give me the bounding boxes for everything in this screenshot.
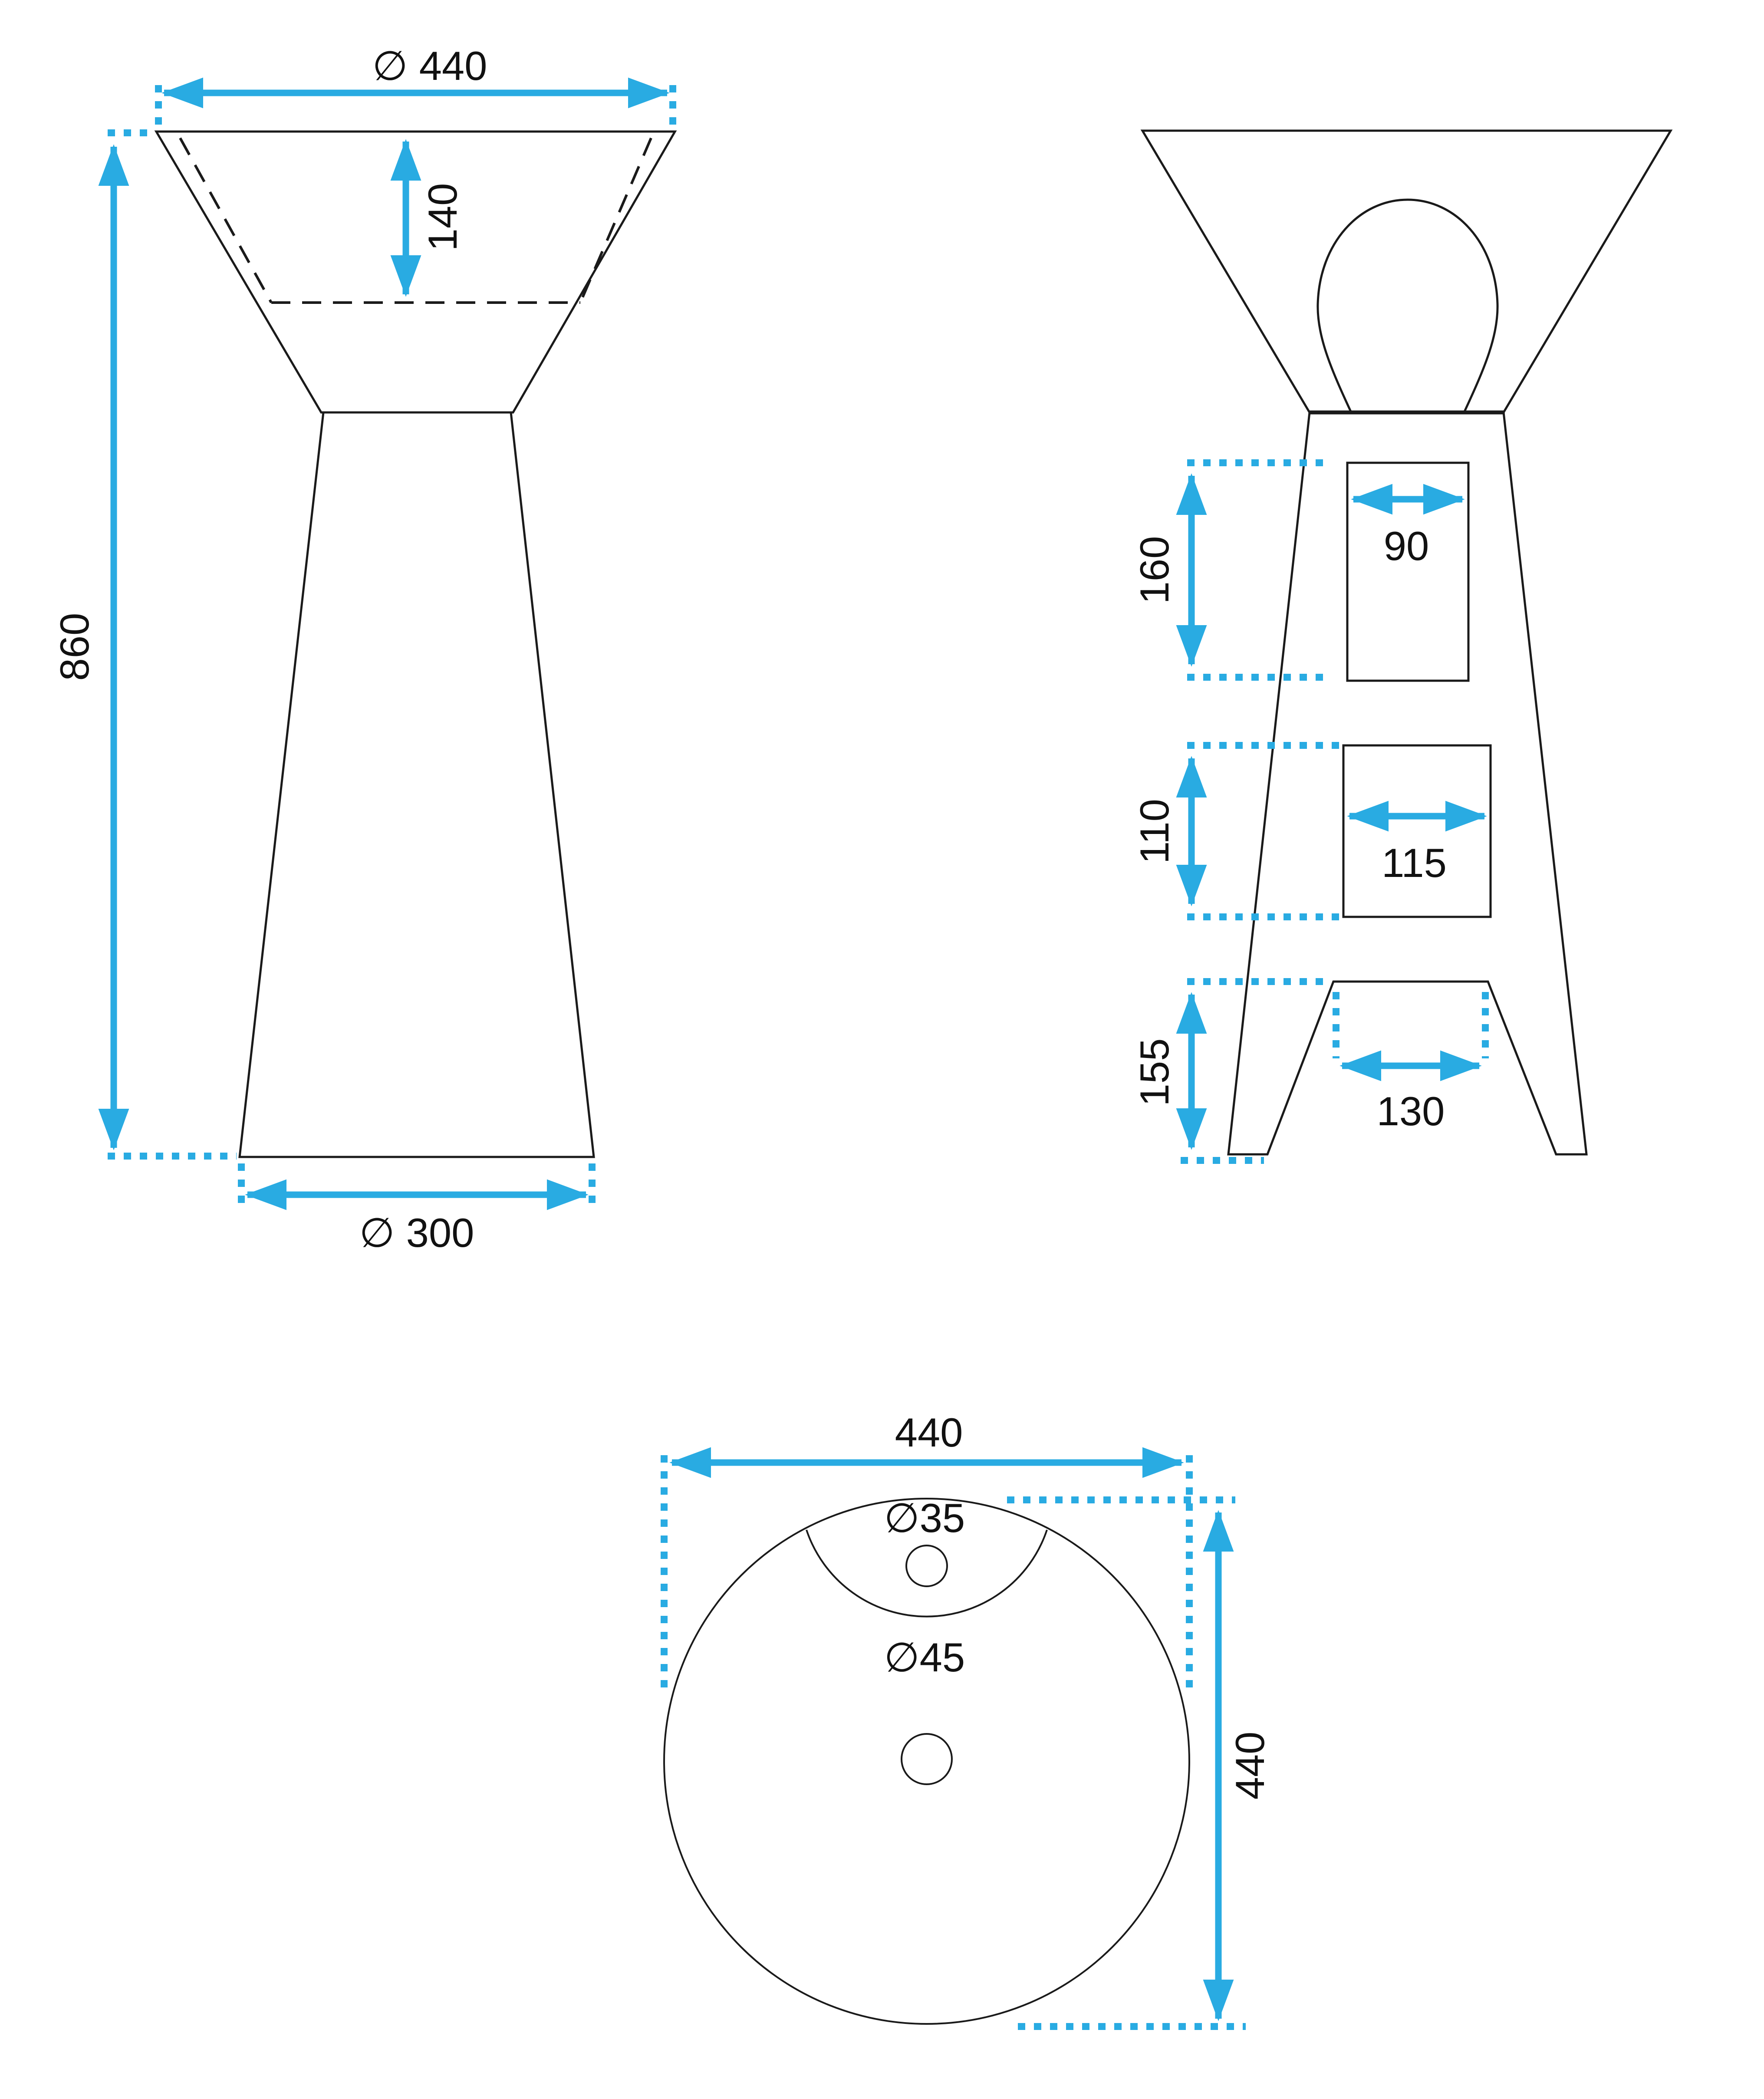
top-view-rim-circle [664, 1499, 1189, 2024]
back-dim-middle-opening-width: 115 [1349, 816, 1484, 886]
front-pedestal-outline [240, 412, 594, 1157]
front-basin-inner-dashed-line [180, 138, 651, 303]
back-dim-upper-opening-width: 90 [1353, 499, 1462, 569]
front-dim-total-height: 860 [52, 133, 237, 1156]
back-basin-outline [1142, 131, 1671, 412]
dimension-label: 90 [1384, 523, 1429, 569]
front-basin-outline [156, 132, 675, 412]
dimension-label: 160 [1132, 536, 1177, 604]
technical-drawing-canvas: ∅ 440 140 860 ∅ 300 [0, 0, 1764, 2099]
dimension-label: ∅ 440 [372, 43, 487, 89]
back-arch-recess-outline [1318, 200, 1497, 412]
dimension-label: 130 [1377, 1088, 1445, 1134]
dimension-label: ∅35 [884, 1495, 965, 1541]
dimension-label: 155 [1132, 1038, 1177, 1107]
dimension-label: ∅ 300 [359, 1210, 474, 1255]
dimension-label: 440 [895, 1410, 963, 1455]
back-upper-opening [1347, 463, 1468, 681]
back-dim-base-opening-width: 130 [1336, 992, 1485, 1134]
dimension-label: 115 [1382, 840, 1447, 886]
dimension-label: 140 [420, 183, 465, 251]
back-middle-opening [1343, 745, 1491, 917]
front-dim-top-diameter: ∅ 440 [158, 43, 673, 131]
top-view-faucet-deck-arc [806, 1530, 1047, 1617]
front-dim-basin-depth: 140 [406, 142, 465, 294]
drawing-page: ∅ 440 140 860 ∅ 300 [0, 0, 1764, 2099]
back-dim-middle-opening-height: 110 [1132, 745, 1340, 917]
front-dim-base-diameter: ∅ 300 [241, 1163, 592, 1255]
dimension-label: ∅45 [884, 1634, 965, 1680]
dimension-label: 860 [52, 613, 97, 681]
back-dim-upper-opening-height: 160 [1132, 463, 1327, 677]
back-view: 160 90 110 115 155 [1132, 131, 1671, 1160]
dimension-label: 440 [1227, 1732, 1273, 1800]
dimension-label: 110 [1132, 799, 1177, 864]
front-view: ∅ 440 140 860 ∅ 300 [52, 43, 675, 1255]
top-dim-overall-depth: 440 [1007, 1500, 1273, 2027]
top-view: ∅35 ∅45 440 440 [664, 1410, 1273, 2027]
top-view-faucet-hole [906, 1545, 947, 1586]
top-view-drain-hole [902, 1734, 952, 1784]
